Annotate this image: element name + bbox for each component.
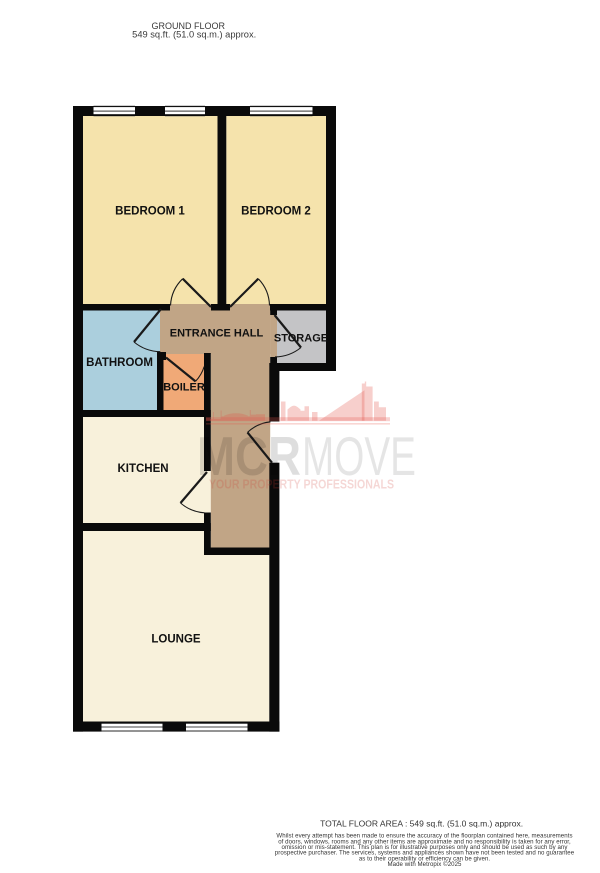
- svg-text:KITCHEN: KITCHEN: [117, 463, 168, 475]
- svg-text:549 sq.ft. (51.0 sq.m.) approx: 549 sq.ft. (51.0 sq.m.) approx.: [132, 29, 256, 39]
- svg-text:BEDROOM 1: BEDROOM 1: [115, 206, 185, 218]
- svg-text:YOUR PROPERTY PROFESSIONALS: YOUR PROPERTY PROFESSIONALS: [209, 477, 394, 492]
- svg-text:STORAGE: STORAGE: [274, 333, 328, 345]
- svg-text:ENTRANCE HALL: ENTRANCE HALL: [170, 328, 264, 340]
- svg-text:BATHROOM: BATHROOM: [86, 357, 153, 369]
- svg-text:BEDROOM 2: BEDROOM 2: [241, 206, 311, 218]
- svg-text:BOILER: BOILER: [163, 382, 205, 394]
- svg-text:LOUNGE: LOUNGE: [151, 634, 201, 646]
- svg-text:Made with Metropix ©2025: Made with Metropix ©2025: [387, 861, 462, 868]
- svg-text:TOTAL FLOOR AREA : 549 sq.ft.: TOTAL FLOOR AREA : 549 sq.ft. (51.0 sq.m…: [320, 818, 523, 828]
